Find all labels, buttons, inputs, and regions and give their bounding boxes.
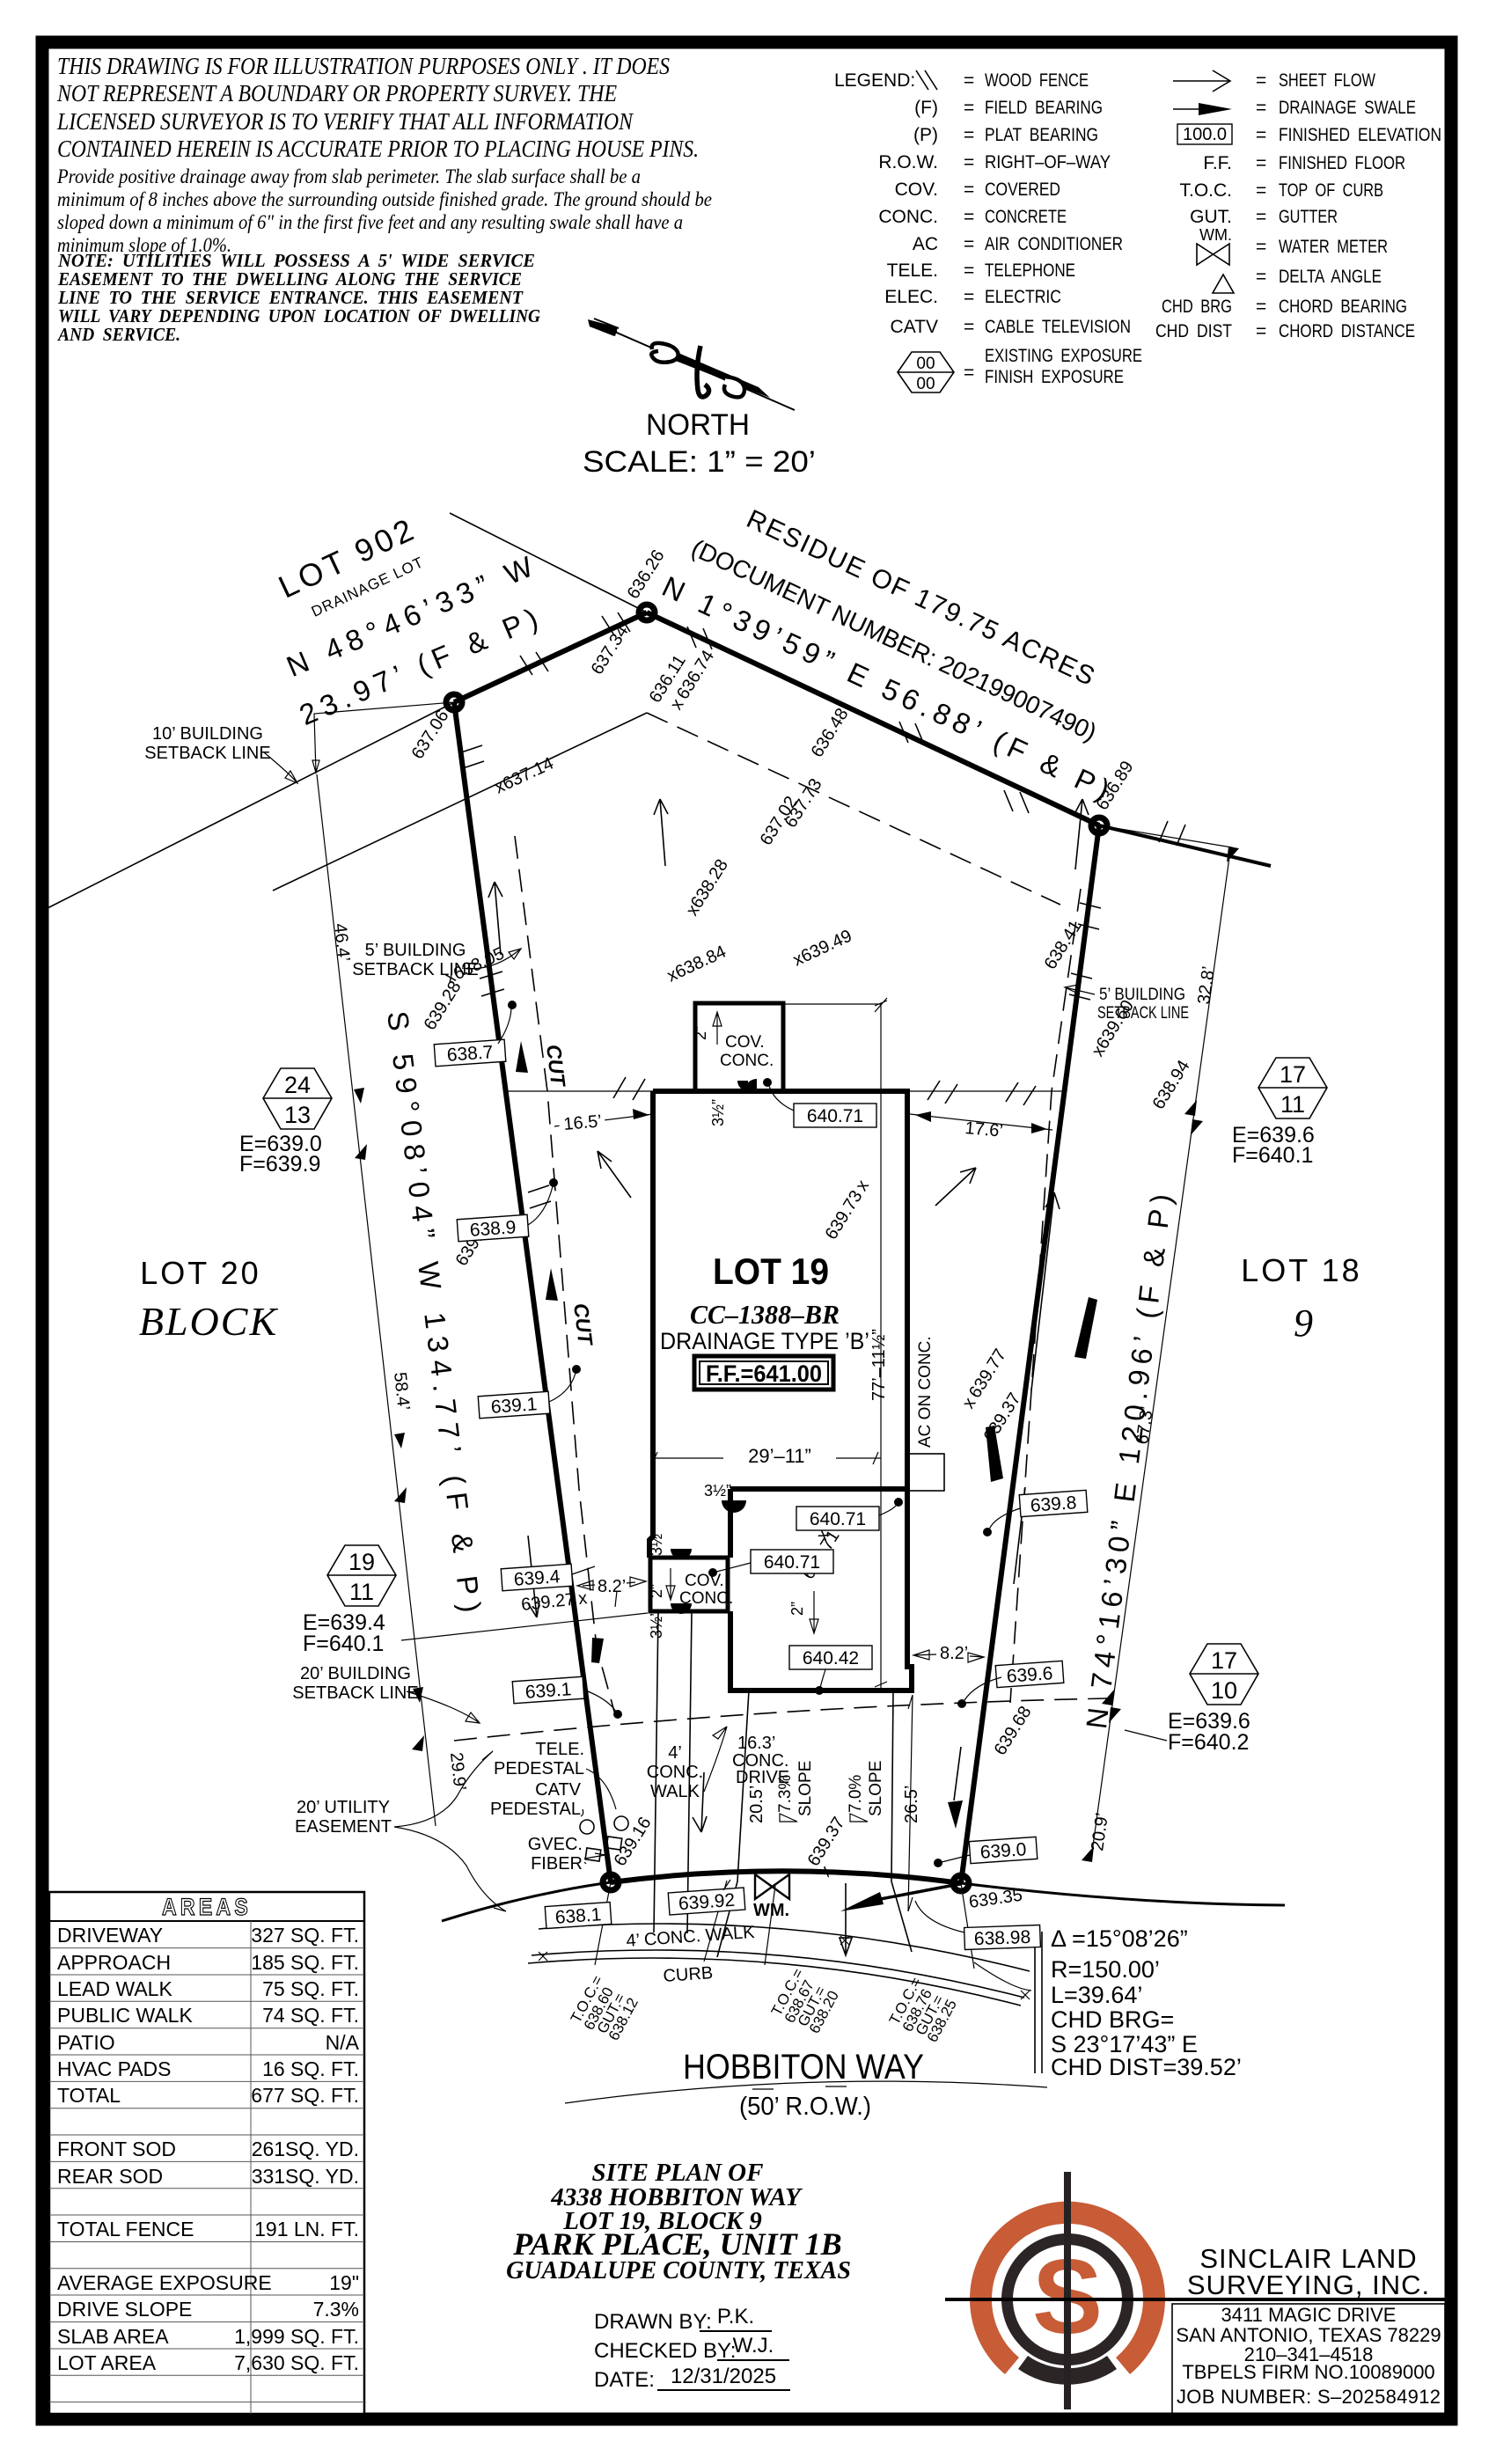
svg-text:638.7: 638.7 xyxy=(446,1042,494,1066)
svg-text:638.1: 638.1 xyxy=(554,1904,602,1928)
svg-text:=: = xyxy=(1256,125,1266,145)
svg-text:SETBACK LINE: SETBACK LINE xyxy=(292,1683,418,1703)
svg-text:FINISHED ELEVATION: FINISHED ELEVATION xyxy=(1279,125,1441,145)
svg-text:WOOD FENCE: WOOD FENCE xyxy=(985,70,1089,91)
svg-text:16 SQ. FT.: 16 SQ. FT. xyxy=(262,2057,359,2080)
svg-text:CHD BRG: CHD BRG xyxy=(1162,297,1232,317)
svg-text:639.8: 639.8 xyxy=(1030,1492,1077,1516)
svg-text:19: 19 xyxy=(348,1549,375,1575)
svg-text:F.F.=641.00: F.F.=641.00 xyxy=(706,1360,822,1387)
svg-text:3½’: 3½’ xyxy=(648,1613,665,1639)
svg-text:GUT.: GUT. xyxy=(1190,207,1232,227)
svg-text:8.2’: 8.2’ xyxy=(940,1644,968,1663)
svg-text:N/A: N/A xyxy=(326,2031,360,2054)
svg-text:639.0: 639.0 xyxy=(979,1839,1027,1863)
svg-text:CHD DIST: CHD DIST xyxy=(1155,321,1232,341)
svg-text:Δ =15°08’26”: Δ =15°08’26” xyxy=(1051,1925,1188,1952)
svg-text:3½”: 3½” xyxy=(704,1482,731,1500)
svg-text:11: 11 xyxy=(1280,1091,1305,1118)
svg-text:LOT 19: LOT 19 xyxy=(713,1250,829,1292)
svg-text:EXISTING EXPOSURE: EXISTING EXPOSURE xyxy=(985,346,1142,366)
svg-text:100.0: 100.0 xyxy=(1183,125,1227,144)
svg-text:58.4’: 58.4’ xyxy=(390,1371,413,1411)
svg-text:7,630 SQ. FT.: 7,630 SQ. FT. xyxy=(234,2351,359,2374)
svg-text:640.71: 640.71 xyxy=(807,1106,863,1126)
svg-text:12/31/2025: 12/31/2025 xyxy=(671,2365,776,2388)
svg-text:AC: AC xyxy=(913,234,938,254)
svg-text:TOP OF CURB: TOP OF CURB xyxy=(1279,180,1383,201)
svg-text:46.4’: 46.4’ xyxy=(330,922,353,962)
svg-text:9: 9 xyxy=(1294,1302,1313,1345)
svg-text:4’: 4’ xyxy=(668,1743,682,1763)
svg-text:AREAS: AREAS xyxy=(162,1894,252,1920)
svg-text:=: = xyxy=(1256,70,1266,91)
svg-text:2”: 2” xyxy=(788,1602,806,1616)
svg-text:26.5’: 26.5’ xyxy=(902,1786,921,1823)
svg-text:10: 10 xyxy=(1211,1677,1237,1704)
svg-text:29’–11”: 29’–11” xyxy=(748,1445,811,1467)
svg-text:GUADALUPE COUNTY, TEXAS: GUADALUPE COUNTY, TEXAS xyxy=(506,2257,851,2284)
svg-text:639.6: 639.6 xyxy=(1006,1663,1053,1687)
svg-text:=: = xyxy=(964,234,974,254)
svg-text:17: 17 xyxy=(1280,1061,1306,1088)
svg-text:185 SQ. FT.: 185 SQ. FT. xyxy=(251,1951,359,1974)
svg-text:Provide positive drainage away: Provide positive drainage away from slab… xyxy=(56,165,641,187)
svg-text:DELTA ANGLE: DELTA ANGLE xyxy=(1279,267,1382,287)
svg-text:677 SQ. FT.: 677 SQ. FT. xyxy=(251,2084,359,2107)
svg-text:2”: 2” xyxy=(648,1584,665,1598)
svg-text:DATE:: DATE: xyxy=(594,2368,655,2392)
svg-text:639.92: 639.92 xyxy=(678,1890,736,1914)
svg-text:COV.: COV. xyxy=(895,180,938,200)
svg-text:AVERAGE EXPOSURE: AVERAGE EXPOSURE xyxy=(57,2271,272,2294)
svg-text:CHORD DISTANCE: CHORD DISTANCE xyxy=(1279,321,1415,341)
svg-text:FRONT SOD: FRONT SOD xyxy=(57,2138,176,2160)
svg-text:CONC.: CONC. xyxy=(720,1052,774,1070)
svg-text:RIGHT–OF–WAY: RIGHT–OF–WAY xyxy=(985,152,1111,172)
svg-text:GUTTER: GUTTER xyxy=(1279,207,1338,227)
svg-text:=: = xyxy=(1256,321,1266,341)
svg-text:29.9’: 29.9’ xyxy=(446,1751,469,1791)
svg-text:THIS DRAWING IS FOR ILLUSTRATI: THIS DRAWING IS FOR ILLUSTRATION PURPOSE… xyxy=(57,53,670,79)
svg-text:16.3’: 16.3’ xyxy=(737,1734,775,1753)
svg-text:=: = xyxy=(1256,207,1266,227)
svg-text:CONCRETE: CONCRETE xyxy=(985,207,1067,227)
svg-text:(F): (F) xyxy=(914,98,938,118)
svg-text:FINISHED FLOOR: FINISHED FLOOR xyxy=(1279,153,1405,173)
svg-text:=: = xyxy=(964,152,974,172)
svg-text:JOB NUMBER: S–202584912: JOB NUMBER: S–202584912 xyxy=(1177,2386,1441,2408)
svg-text:DRAINAGE SWALE: DRAINAGE SWALE xyxy=(1279,98,1416,118)
svg-text:74 SQ. FT.: 74 SQ. FT. xyxy=(262,2004,359,2027)
svg-text:sloped down a minimum of 6" in: sloped down a minimum of 6" in the first… xyxy=(57,211,683,233)
svg-text:7.3%: 7.3% xyxy=(776,1775,795,1813)
svg-text:TELE.: TELE. xyxy=(887,260,938,281)
svg-text:T.O.C.: T.O.C. xyxy=(1179,180,1232,201)
svg-text:COV.: COV. xyxy=(685,1572,724,1590)
svg-text:639.1: 639.1 xyxy=(524,1679,572,1703)
svg-text:R=150.00’: R=150.00’ xyxy=(1051,1956,1160,1983)
svg-text:=: = xyxy=(964,363,974,383)
svg-text:HOBBITON WAY: HOBBITON WAY xyxy=(683,2048,924,2086)
svg-text:331SQ. YD.: 331SQ. YD. xyxy=(252,2165,359,2188)
svg-text:NOT REPRESENT A BOUNDARY OR PR: NOT REPRESENT A BOUNDARY OR PROPERTY SUR… xyxy=(56,80,617,106)
svg-text:PLAT BEARING: PLAT BEARING xyxy=(985,125,1098,145)
svg-text:CURB: CURB xyxy=(663,1963,714,1986)
svg-text:CONC.: CONC. xyxy=(878,207,938,227)
svg-text:SHEET FLOW: SHEET FLOW xyxy=(1279,70,1375,91)
svg-text:PUBLIC WALK: PUBLIC WALK xyxy=(57,2004,193,2027)
svg-text:00: 00 xyxy=(916,355,935,373)
svg-text:17.6’: 17.6’ xyxy=(964,1118,1004,1141)
svg-text:CABLE TELEVISION: CABLE TELEVISION xyxy=(985,317,1131,337)
svg-text:TOTAL: TOTAL xyxy=(57,2084,121,2107)
svg-text:(P): (P) xyxy=(913,125,938,145)
svg-text:=: = xyxy=(964,125,974,145)
svg-text:TBPELS FIRM NO.10089000: TBPELS FIRM NO.10089000 xyxy=(1182,2361,1434,2383)
svg-text:261SQ. YD.: 261SQ. YD. xyxy=(252,2138,359,2160)
svg-text:640.71: 640.71 xyxy=(810,1509,866,1529)
svg-text:TELE.: TELE. xyxy=(535,1740,584,1759)
svg-text:PEDESTAL: PEDESTAL xyxy=(490,1800,581,1819)
svg-text:3411 MAGIC DRIVE: 3411 MAGIC DRIVE xyxy=(1221,2304,1397,2326)
svg-text:=: = xyxy=(964,180,974,200)
svg-text:CATV: CATV xyxy=(535,1780,582,1800)
svg-text:F=640.1: F=640.1 xyxy=(303,1632,384,1656)
svg-text:CHECKED BY:: CHECKED BY: xyxy=(594,2339,736,2363)
svg-text:R.O.W.: R.O.W. xyxy=(878,152,938,172)
svg-text:3½”: 3½” xyxy=(648,1529,665,1556)
svg-text:AC ON CONC.: AC ON CONC. xyxy=(916,1336,935,1448)
svg-text:AIR CONDITIONER: AIR CONDITIONER xyxy=(985,234,1123,254)
svg-text:SLOPE: SLOPE xyxy=(796,1761,815,1816)
svg-text:=: = xyxy=(1256,180,1266,201)
svg-text:1,999 SQ. FT.: 1,999 SQ. FT. xyxy=(234,2325,359,2348)
svg-text:WALK: WALK xyxy=(650,1782,700,1801)
svg-text:=: = xyxy=(964,207,974,227)
svg-text:SLAB AREA: SLAB AREA xyxy=(57,2325,169,2348)
svg-text:=: = xyxy=(964,98,974,118)
svg-text:CC–1388–BR: CC–1388–BR xyxy=(690,1299,840,1330)
svg-text:20’ BUILDING: 20’ BUILDING xyxy=(300,1664,411,1683)
svg-text:DRAWN BY:: DRAWN BY: xyxy=(594,2310,712,2334)
svg-text:ELECTRIC: ELECTRIC xyxy=(985,287,1061,307)
svg-text:F=639.9: F=639.9 xyxy=(239,1152,320,1177)
svg-text:LICENSED SURVEYOR IS TO VERIFY: LICENSED SURVEYOR IS TO VERIFY THAT ALL … xyxy=(56,108,634,135)
svg-text:BLOCK: BLOCK xyxy=(139,1299,279,1344)
svg-text:W.J.: W.J. xyxy=(733,2334,774,2358)
svg-text:20’ UTILITY: 20’ UTILITY xyxy=(297,1798,390,1817)
svg-text:CATV: CATV xyxy=(891,317,938,337)
svg-text:(50’ R.O.W.): (50’ R.O.W.) xyxy=(739,2093,871,2121)
svg-text:640.71: 640.71 xyxy=(764,1552,820,1573)
svg-text:GVEC.: GVEC. xyxy=(528,1835,583,1854)
svg-text:LOT 20: LOT 20 xyxy=(140,1255,260,1291)
svg-text:WM.: WM. xyxy=(1199,226,1232,244)
svg-text:638.98: 638.98 xyxy=(974,1927,1031,1949)
svg-text:17: 17 xyxy=(1211,1647,1237,1674)
svg-text:7.3%: 7.3% xyxy=(313,2298,359,2321)
svg-text:20.5’: 20.5’ xyxy=(747,1786,766,1823)
svg-text:FIBER: FIBER xyxy=(531,1854,583,1874)
svg-text:75 SQ. FT.: 75 SQ. FT. xyxy=(262,1977,359,2000)
svg-text:=: = xyxy=(1256,267,1266,287)
svg-text:5’ BUILDING: 5’ BUILDING xyxy=(365,941,466,960)
svg-text:FIELD BEARING: FIELD BEARING xyxy=(985,98,1103,118)
svg-text:NORTH: NORTH xyxy=(646,408,750,442)
svg-text:=: = xyxy=(964,260,974,281)
svg-text:ELEC.: ELEC. xyxy=(884,287,938,307)
svg-text:CONC.: CONC. xyxy=(647,1763,703,1782)
svg-text:10’ BUILDING: 10’ BUILDING xyxy=(152,724,263,744)
svg-text:COV.: COV. xyxy=(725,1033,765,1052)
svg-text:DRAINAGE TYPE ’B’: DRAINAGE TYPE ’B’ xyxy=(660,1328,869,1354)
svg-text:2”: 2” xyxy=(692,1026,709,1040)
svg-text:=: = xyxy=(1256,153,1266,173)
svg-text:=: = xyxy=(1256,98,1266,118)
svg-text:DRIVEWAY: DRIVEWAY xyxy=(57,1924,163,1947)
svg-text:SCALE: 1” = 20’: SCALE: 1” = 20’ xyxy=(583,445,816,479)
svg-text:=: = xyxy=(1256,297,1266,317)
svg-text:TELEPHONE: TELEPHONE xyxy=(985,260,1075,281)
svg-text:F.F.: F.F. xyxy=(1203,153,1232,173)
svg-text:AND SERVICE.: AND SERVICE. xyxy=(56,324,180,345)
svg-text:7.0%: 7.0% xyxy=(847,1775,865,1813)
svg-text:8.2’: 8.2’ xyxy=(598,1577,626,1596)
svg-text:00: 00 xyxy=(916,375,935,393)
svg-text:COVERED: COVERED xyxy=(985,180,1060,200)
svg-text:13: 13 xyxy=(284,1102,311,1128)
svg-text:638.9: 638.9 xyxy=(469,1217,517,1241)
svg-text:HVAC PADS: HVAC PADS xyxy=(57,2057,172,2080)
svg-text:19": 19" xyxy=(329,2271,359,2294)
svg-text:LOT 18: LOT 18 xyxy=(1241,1252,1361,1288)
svg-text:327 SQ. FT.: 327 SQ. FT. xyxy=(251,1924,359,1947)
svg-text:F=640.1: F=640.1 xyxy=(1232,1143,1313,1168)
svg-text:L=39.64’: L=39.64’ xyxy=(1051,1982,1142,2008)
svg-text:F=640.2: F=640.2 xyxy=(1168,1730,1249,1755)
svg-text:77’–11½”: 77’–11½” xyxy=(869,1329,889,1401)
svg-text:WATER METER: WATER METER xyxy=(1279,237,1388,257)
svg-text:FINISH EXPOSURE: FINISH EXPOSURE xyxy=(985,367,1124,387)
svg-text:=: = xyxy=(964,317,974,337)
svg-text:3½”: 3½” xyxy=(709,1099,727,1126)
svg-text:minimum of 8 inches above the: minimum of 8 inches above the surroundin… xyxy=(57,188,712,210)
svg-text:5’ BUILDING: 5’ BUILDING xyxy=(1099,986,1185,1004)
svg-text:639.4: 639.4 xyxy=(513,1566,561,1590)
svg-text:PARK PLACE, UNIT 1B: PARK PLACE, UNIT 1B xyxy=(512,2226,841,2262)
svg-text:CHD BRG=: CHD BRG= xyxy=(1051,2006,1174,2033)
svg-text:640.42: 640.42 xyxy=(803,1648,859,1668)
svg-text:SETBACK LINE: SETBACK LINE xyxy=(144,744,270,763)
svg-text:APPROACH: APPROACH xyxy=(57,1951,171,1974)
svg-text:EASEMENT: EASEMENT xyxy=(295,1817,392,1837)
svg-text:=: = xyxy=(964,70,974,91)
svg-text:PEDESTAL: PEDESTAL xyxy=(494,1759,584,1778)
svg-text:TOTAL FENCE: TOTAL FENCE xyxy=(57,2218,194,2240)
svg-text:LEAD WALK: LEAD WALK xyxy=(57,1977,172,2000)
svg-text:11: 11 xyxy=(349,1579,374,1605)
svg-text:LEGEND:: LEGEND: xyxy=(834,70,915,91)
svg-text:CHD DIST=39.52’: CHD DIST=39.52’ xyxy=(1051,2054,1242,2080)
svg-text:DRIVE SLOPE: DRIVE SLOPE xyxy=(57,2298,192,2321)
svg-text:LOT AREA: LOT AREA xyxy=(57,2351,157,2374)
svg-text:P.K.: P.K. xyxy=(717,2305,754,2328)
svg-text:PATIO: PATIO xyxy=(57,2031,115,2054)
svg-text:639.1: 639.1 xyxy=(490,1394,538,1418)
svg-text:SURVEYING, INC.: SURVEYING, INC. xyxy=(1187,2270,1430,2300)
svg-text:REAR SOD: REAR SOD xyxy=(57,2165,163,2188)
svg-text:SLOPE: SLOPE xyxy=(867,1761,885,1816)
svg-text:CHORD BEARING: CHORD BEARING xyxy=(1279,297,1407,317)
svg-text:24: 24 xyxy=(284,1072,311,1098)
svg-text:=: = xyxy=(1256,237,1266,257)
svg-text:=: = xyxy=(964,287,974,307)
svg-text:CONTAINED HEREIN IS ACCURATE P: CONTAINED HEREIN IS ACCURATE PRIOR TO PL… xyxy=(57,136,699,162)
svg-text:191 LN. FT.: 191 LN. FT. xyxy=(254,2218,359,2240)
svg-text:16.5’: 16.5’ xyxy=(563,1111,603,1134)
